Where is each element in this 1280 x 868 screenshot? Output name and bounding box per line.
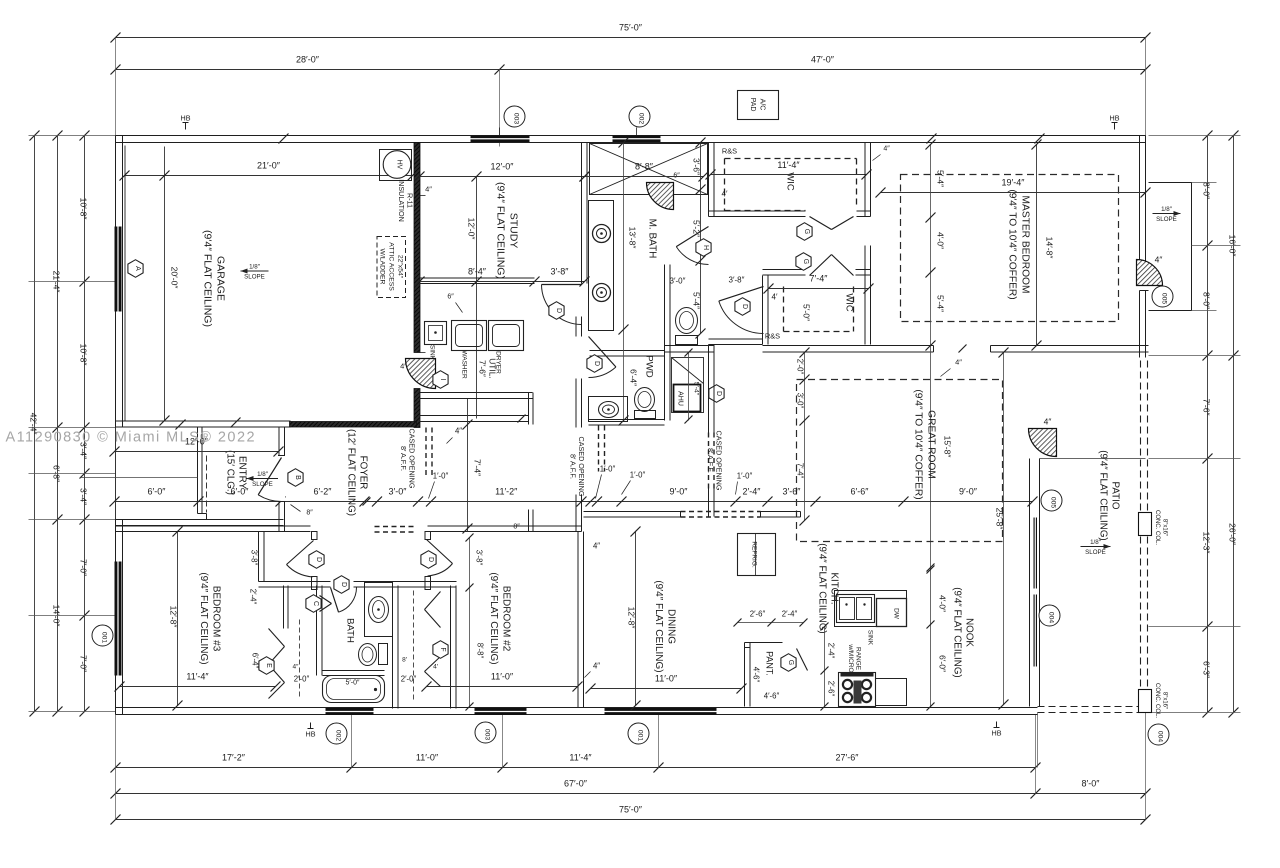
svg-text:PAD: PAD (749, 98, 756, 112)
svg-text:ATTIC ACCESS: ATTIC ACCESS (388, 242, 395, 291)
svg-text:5′-0″: 5′-0″ (346, 680, 360, 687)
svg-text:R&S: R&S (765, 332, 780, 341)
svg-text:67′-0″: 67′-0″ (564, 779, 588, 789)
svg-text:4″: 4″ (1044, 417, 1052, 427)
svg-text:REFRIG.: REFRIG. (751, 541, 758, 568)
svg-text:1′-0″: 1′-0″ (433, 472, 449, 481)
svg-text:8′-8″: 8′-8″ (635, 162, 654, 172)
svg-text:3′-4″: 3′-4″ (79, 488, 89, 505)
svg-text:4′: 4′ (433, 664, 439, 671)
svg-text:(9′4″ FLAT CEILING): (9′4″ FLAT CEILING) (198, 572, 209, 664)
svg-text:8′-4″: 8′-4″ (468, 267, 487, 277)
svg-text:SLOPE: SLOPE (244, 274, 265, 281)
svg-text:HB: HB (1110, 114, 1120, 123)
svg-text:HB: HB (181, 114, 191, 123)
svg-text:1′-0″: 1′-0″ (600, 465, 616, 474)
svg-text:4″: 4″ (955, 358, 962, 367)
svg-text:D: D (340, 582, 347, 587)
svg-text:8″x16″: 8″x16″ (1162, 692, 1168, 710)
svg-text:8′-0″: 8′-0″ (1202, 292, 1212, 309)
svg-text:4″: 4″ (593, 542, 600, 551)
svg-text:11′-0″: 11′-0″ (491, 672, 514, 682)
svg-text:SLOPE: SLOPE (1156, 216, 1177, 223)
svg-text:3′-8″: 3′-8″ (729, 276, 745, 285)
svg-text:2′-4″: 2′-4″ (782, 610, 798, 619)
svg-text:47′-0″: 47′-0″ (811, 55, 835, 65)
svg-text:20′-0″: 20′-0″ (170, 267, 180, 289)
svg-text:C: C (312, 601, 319, 606)
svg-text:M. BATH: M. BATH (647, 219, 658, 259)
svg-text:14′-8″: 14′-8″ (1045, 237, 1055, 259)
svg-text:8′-8″: 8′-8″ (476, 643, 485, 659)
svg-text:SINK: SINK (867, 630, 874, 646)
svg-text:UTIL.: UTIL. (488, 358, 498, 378)
svg-text:10′-8″: 10′-8″ (79, 198, 89, 220)
svg-text:12′-8″: 12′-8″ (169, 606, 179, 628)
svg-text:1/8″: 1/8″ (249, 264, 261, 271)
svg-text:11′-0″: 11′-0″ (416, 753, 439, 763)
svg-text:BATH: BATH (345, 618, 356, 643)
svg-text:3′-8″: 3′-8″ (551, 267, 570, 277)
svg-text:I: I (439, 379, 446, 381)
svg-text:D: D (715, 391, 722, 396)
svg-text:002: 002 (335, 730, 342, 742)
svg-text:(9′4″ TO 10′4″ COFFER): (9′4″ TO 10′4″ COFFER) (1007, 189, 1018, 299)
svg-text:H: H (702, 245, 709, 250)
svg-text:8′: 8′ (402, 657, 408, 664)
svg-text:6′-3″: 6′-3″ (1202, 661, 1212, 678)
svg-text:DINING: DINING (666, 609, 677, 644)
svg-text:75′-0″: 75′-0″ (619, 23, 643, 33)
svg-text:1/8″: 1/8″ (257, 471, 269, 478)
svg-text:PWD: PWD (644, 355, 655, 377)
svg-text:7′-4″: 7′-4″ (796, 463, 805, 479)
svg-text:A: A (134, 266, 141, 271)
svg-text:A11290830 © Miami MLS® 2022: A11290830 © Miami MLS® 2022 (6, 430, 256, 446)
svg-text:6′-2″: 6′-2″ (314, 487, 333, 497)
svg-text:5′-4″: 5′-4″ (693, 382, 700, 396)
svg-text:001: 001 (101, 632, 108, 644)
svg-text:9′-0″: 9′-0″ (959, 487, 978, 497)
svg-text:R&S: R&S (722, 147, 737, 156)
svg-text:4″: 4″ (455, 427, 462, 436)
svg-text:4″: 4″ (400, 362, 407, 371)
svg-text:4′-0″: 4′-0″ (938, 595, 948, 612)
svg-text:(9′4″ FLAT CEILING): (9′4″ FLAT CEILING) (1098, 450, 1109, 540)
svg-text:DW: DW (893, 608, 900, 620)
svg-text:4″: 4″ (883, 146, 890, 153)
svg-text:6′-4″: 6′-4″ (251, 653, 260, 669)
svg-text:005: 005 (1050, 497, 1057, 509)
svg-text:8′-0″: 8′-0″ (1082, 779, 1101, 789)
svg-text:12′-0″: 12′-0″ (467, 218, 477, 240)
svg-text:4″: 4″ (425, 185, 432, 194)
svg-text:5′-4″: 5′-4″ (936, 170, 946, 187)
svg-text:7′-0″: 7′-0″ (79, 655, 89, 672)
svg-text:w/MICRO: w/MICRO (847, 643, 854, 672)
svg-text:4′-6″: 4′-6″ (764, 692, 780, 701)
svg-text:6″: 6″ (673, 173, 680, 180)
svg-text:2′-6″: 2′-6″ (750, 610, 766, 619)
svg-text:5′-4″: 5′-4″ (692, 292, 702, 309)
svg-text:(12′ FLAT CEILING): (12′ FLAT CEILING) (346, 429, 357, 516)
svg-text:19′-4″: 19′-4″ (1002, 178, 1026, 188)
svg-text:2′-6″: 2′-6″ (827, 681, 836, 697)
svg-text:B: B (294, 475, 301, 480)
svg-text:11′-2″: 11′-2″ (495, 487, 518, 497)
svg-text:CONC. COL.: CONC. COL. (1154, 683, 1160, 718)
svg-text:6′-0″: 6′-0″ (148, 487, 167, 497)
svg-text:12′-8″: 12′-8″ (627, 607, 637, 629)
svg-text:12′-3″: 12′-3″ (1202, 532, 1212, 554)
svg-text:17′-2″: 17′-2″ (222, 753, 246, 763)
svg-text:WIC: WIC (845, 293, 856, 311)
svg-text:004: 004 (1157, 731, 1164, 743)
svg-text:3′-0″: 3′-0″ (670, 277, 686, 286)
svg-text:8″: 8″ (513, 524, 520, 531)
svg-text:11′-0″: 11′-0″ (655, 674, 678, 684)
svg-text:7′-4″: 7′-4″ (473, 459, 483, 476)
svg-text:ENTRY: ENTRY (237, 456, 248, 489)
svg-text:D: D (741, 304, 748, 309)
svg-text:NOOK: NOOK (964, 618, 975, 647)
svg-text:22″x54″: 22″x54″ (397, 255, 404, 279)
svg-text:003: 003 (484, 729, 491, 741)
svg-text:A/C: A/C (759, 99, 766, 111)
svg-text:25′-8″: 25′-8″ (995, 508, 1005, 530)
svg-text:4″: 4″ (1155, 255, 1163, 265)
svg-text:RANGE: RANGE (855, 647, 862, 671)
svg-text:D: D (555, 308, 562, 313)
svg-text:005: 005 (1161, 293, 1168, 305)
svg-text:11′-4″: 11′-4″ (186, 672, 209, 682)
svg-text:2′-4″: 2′-4″ (249, 589, 258, 605)
svg-text:G: G (803, 229, 810, 234)
svg-text:4′: 4′ (772, 293, 778, 302)
svg-text:2′-0″: 2′-0″ (401, 675, 417, 684)
svg-text:3′-0″: 3′-0″ (389, 487, 408, 497)
svg-text:6′-4″: 6′-4″ (629, 369, 639, 386)
svg-text:SLOPE: SLOPE (1085, 549, 1106, 556)
svg-text:8′ A.F.F.: 8′ A.F.F. (569, 454, 578, 479)
svg-text:21′-0″: 21′-0″ (257, 161, 281, 171)
svg-text:002: 002 (638, 113, 645, 125)
svg-text:D: D (593, 361, 600, 366)
svg-text:PANT.: PANT. (765, 651, 775, 676)
svg-text:(9′4″ FLAT CEILING): (9′4″ FLAT CEILING) (202, 230, 214, 327)
svg-text:D: D (315, 557, 322, 562)
svg-text:2′-0″: 2′-0″ (294, 675, 310, 684)
svg-text:(9′4″ FLAT CEILING): (9′4″ FLAT CEILING) (952, 587, 963, 677)
svg-text:STUDY: STUDY (508, 213, 520, 249)
svg-text:G: G (787, 660, 794, 665)
svg-text:(9′4″ FLAT CEILING): (9′4″ FLAT CEILING) (817, 543, 828, 633)
svg-text:3′-8″: 3′-8″ (475, 550, 484, 566)
svg-text:27′-6″: 27′-6″ (836, 753, 860, 763)
svg-text:PATIO: PATIO (1110, 482, 1121, 510)
svg-text:11′-4″: 11′-4″ (569, 753, 592, 763)
svg-text:BEDROOM #3: BEDROOM #3 (211, 586, 222, 652)
svg-text:6′-0″: 6′-0″ (938, 655, 948, 672)
svg-text:1′-0″: 1′-0″ (630, 471, 646, 480)
svg-text:6′-0″: 6′-0″ (231, 487, 250, 497)
svg-text:15′-8″: 15′-8″ (943, 436, 953, 458)
svg-text:7′-6″: 7′-6″ (1202, 398, 1212, 415)
svg-text:6′-6″: 6′-6″ (851, 487, 870, 497)
svg-text:4″: 4″ (593, 662, 600, 671)
svg-text:WASHER: WASHER (461, 350, 468, 379)
svg-text:HV: HV (396, 160, 403, 170)
svg-text:1/8″: 1/8″ (1161, 206, 1173, 213)
svg-text:5′-4″: 5′-4″ (936, 295, 946, 312)
svg-text:7′-0″: 7′-0″ (79, 559, 89, 576)
svg-text:HB: HB (992, 729, 1002, 738)
svg-text:7′-6″: 7′-6″ (478, 360, 488, 377)
svg-text:2′-4″: 2′-4″ (743, 487, 762, 497)
svg-text:CONC. COL.: CONC. COL. (1154, 510, 1160, 545)
svg-text:(9′4″ TO 10′4″ COFFER): (9′4″ TO 10′4″ COFFER) (913, 389, 924, 499)
svg-text:MASTER BEDROOM: MASTER BEDROOM (1020, 196, 1031, 294)
svg-text:4′: 4′ (722, 190, 728, 199)
svg-text:1/8″: 1/8″ (1090, 539, 1102, 546)
svg-text:BEDROOM #2: BEDROOM #2 (501, 586, 512, 652)
svg-text:13′-8″: 13′-8″ (628, 227, 638, 249)
svg-text:4′-0″: 4′-0″ (936, 232, 946, 249)
svg-text:8′-0″: 8′-0″ (1202, 182, 1212, 199)
svg-text:5′-0″: 5′-0″ (802, 304, 812, 321)
svg-text:8′ A.F.F.: 8′ A.F.F. (399, 446, 408, 471)
svg-text:28′-0″: 28′-0″ (296, 55, 320, 65)
svg-text:WIC: WIC (786, 172, 797, 190)
svg-text:2′-4″: 2′-4″ (827, 643, 836, 659)
svg-text:001: 001 (637, 730, 644, 742)
svg-text:GREAT ROOM: GREAT ROOM (926, 410, 937, 479)
svg-text:3′-6″: 3′-6″ (783, 487, 802, 497)
svg-text:W/LADDER: W/LADDER (379, 249, 386, 285)
svg-text:INSULATION: INSULATION (397, 179, 406, 222)
svg-text:AHU: AHU (677, 391, 684, 406)
svg-text:GARAGE: GARAGE (215, 256, 227, 301)
svg-text:003: 003 (513, 113, 520, 125)
svg-text:75′-0″: 75′-0″ (619, 805, 643, 815)
svg-text:(9′4″ FLAT CEILING): (9′4″ FLAT CEILING) (488, 572, 499, 664)
svg-text:11′-4″: 11′-4″ (777, 160, 800, 170)
svg-text:3′-6″: 3′-6″ (692, 158, 702, 175)
svg-text:6″: 6″ (447, 294, 454, 301)
svg-text:7′-4″: 7′-4″ (810, 274, 829, 284)
svg-text:4′-6″: 4′-6″ (752, 667, 761, 683)
svg-text:(9′4″ FLAT CEILING): (9′4″ FLAT CEILING) (495, 182, 507, 279)
svg-text:4″: 4″ (293, 664, 300, 671)
svg-text:G: G (802, 259, 809, 264)
svg-text:004: 004 (1048, 612, 1055, 624)
svg-text:D: D (427, 557, 434, 562)
svg-text:3′-0″: 3′-0″ (796, 393, 805, 409)
svg-text:8″: 8″ (306, 510, 313, 517)
svg-text:FOYER: FOYER (358, 456, 369, 490)
svg-text:F: F (439, 647, 446, 651)
svg-text:10′-8″: 10′-8″ (79, 344, 89, 366)
svg-text:(9′4″ FLAT CEILING): (9′4″ FLAT CEILING) (653, 580, 664, 672)
svg-text:12′-0″: 12′-0″ (491, 162, 515, 172)
svg-text:9′-0″: 9′-0″ (670, 487, 689, 497)
svg-text:2′-0″: 2′-0″ (796, 359, 805, 375)
svg-text:8″x16″: 8″x16″ (1162, 519, 1168, 537)
svg-text:E: E (265, 663, 272, 668)
svg-text:HB: HB (306, 730, 316, 739)
svg-text:1′-0″: 1′-0″ (737, 472, 753, 481)
svg-text:26′-0″: 26′-0″ (1228, 523, 1238, 545)
svg-text:3′-8″: 3′-8″ (250, 550, 259, 566)
